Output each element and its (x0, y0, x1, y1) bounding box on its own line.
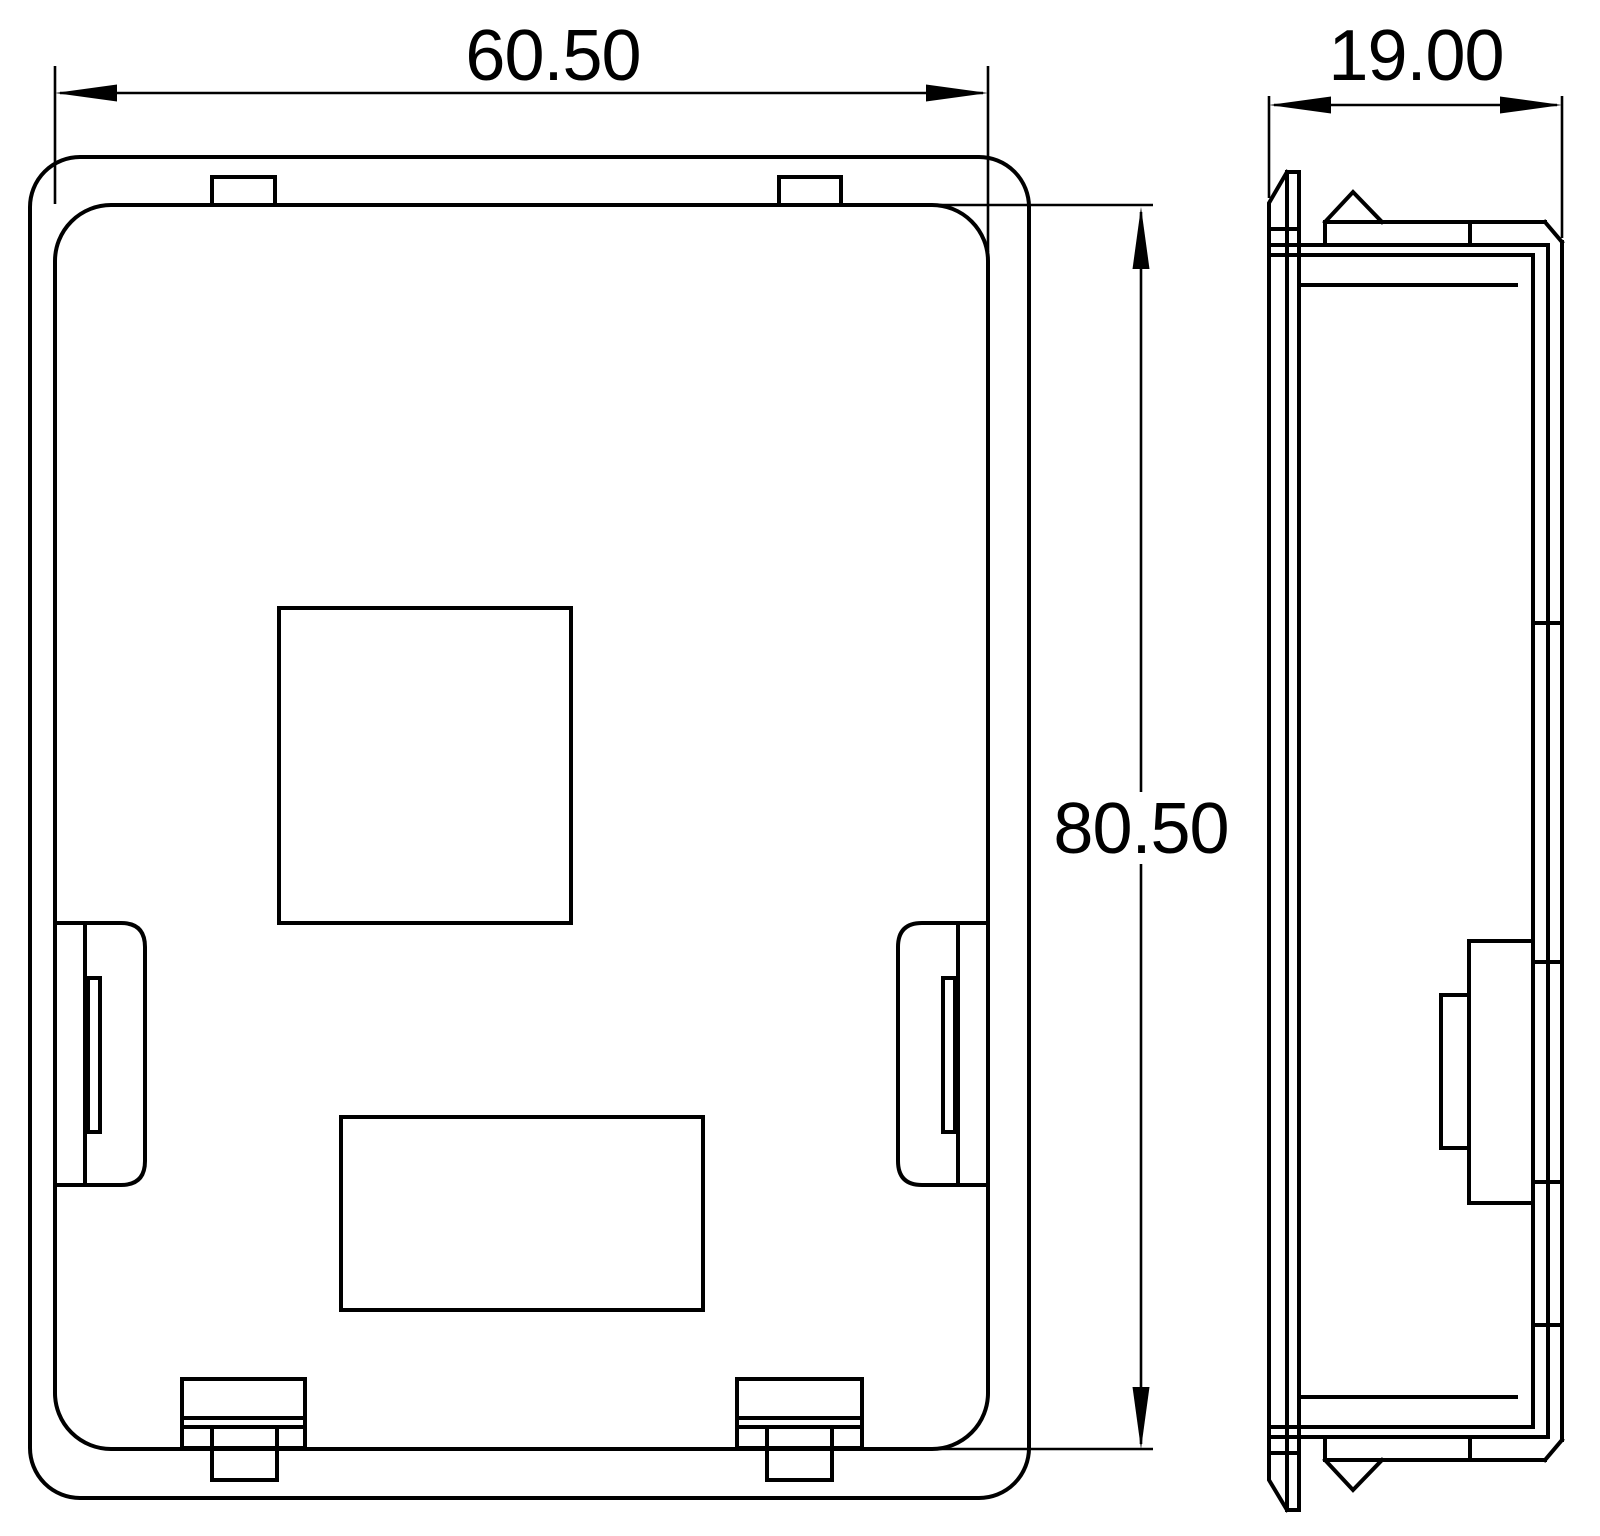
dim-width-arrow-right (926, 85, 988, 102)
side-bottom-hook-triangle (1325, 1460, 1382, 1490)
dim-depth-arrow-left (1269, 97, 1331, 114)
side-top-hook-triangle (1325, 192, 1382, 222)
side-latch-block-step (1441, 995, 1469, 1148)
side-flange-front-edge (1269, 172, 1287, 1510)
front-top-tab-left (212, 177, 275, 205)
dim-height-arrow-down (1133, 1387, 1150, 1449)
side-top-rail-chamfer (1545, 222, 1562, 242)
front-bottom-tab-right-outline (737, 1379, 862, 1448)
front-bottom-tab-left (182, 1379, 305, 1480)
front-bottom-tab-left-outline (182, 1379, 305, 1448)
front-top-tab-right (779, 177, 841, 205)
side-latch-block-outline (1469, 941, 1533, 1203)
front-lower-window (341, 1117, 703, 1310)
technical-drawing: 60.50 80.50 19.00 (0, 0, 1600, 1536)
side-back-walls (1533, 242, 1562, 1440)
front-inner-plate-outline (55, 205, 988, 1449)
front-view (30, 157, 1029, 1498)
dimension-front-height: 80.50 (930, 205, 1232, 1449)
front-right-latch (898, 923, 988, 1185)
front-bottom-tab-right (737, 1379, 862, 1480)
dim-depth-label: 19.00 (1328, 16, 1503, 96)
dim-height-arrow-up (1133, 207, 1150, 269)
dim-height-label: 80.50 (1053, 789, 1228, 869)
side-view (1269, 172, 1562, 1510)
side-bottom-rail (1269, 1397, 1562, 1490)
dim-width-label: 60.50 (465, 16, 640, 96)
front-right-latch-slot (943, 978, 955, 1132)
front-left-latch (55, 923, 145, 1185)
front-left-latch-slot (88, 978, 100, 1132)
front-bottom-tab-right-foot (767, 1427, 832, 1480)
dimension-side-depth: 19.00 (1269, 16, 1562, 238)
side-latch-block (1441, 941, 1533, 1203)
dimension-front-width: 60.50 (55, 16, 988, 252)
side-bottom-rail-chamfer (1545, 1440, 1562, 1460)
front-upper-window (279, 608, 571, 923)
side-top-rail (1269, 192, 1562, 285)
front-outer-outline (30, 157, 1029, 1498)
dim-width-arrow-left (55, 85, 117, 102)
dim-depth-arrow-right (1500, 97, 1562, 114)
front-bottom-tab-left-foot (212, 1427, 277, 1480)
